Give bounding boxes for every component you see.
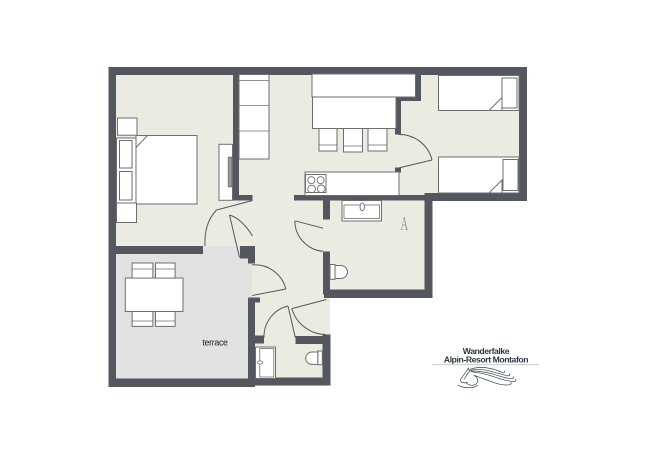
svg-text:Alpin-Resort Montafon: Alpin-Resort Montafon [444,354,528,364]
svg-text:A: A [400,214,408,235]
svg-text:terrace: terrace [202,338,228,348]
